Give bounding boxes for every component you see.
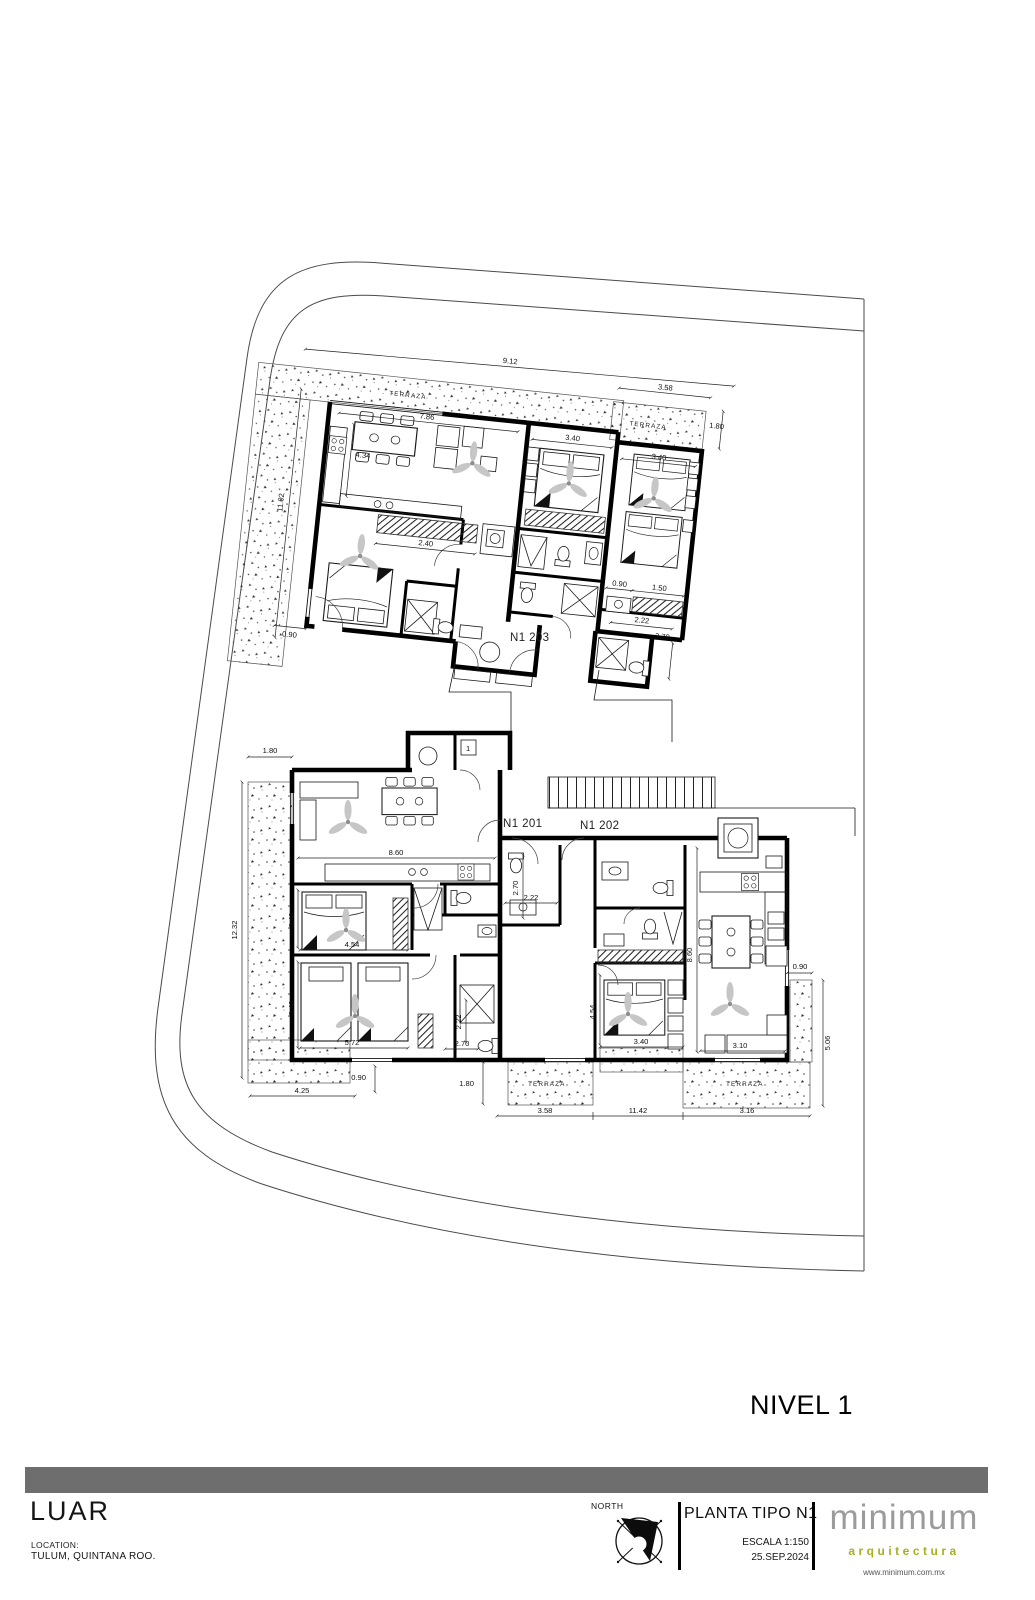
toilet-icon [509,853,524,873]
dim-label: 3.40 [634,1037,649,1046]
terrace-label: TERRAZA [726,1081,764,1088]
dim-label: 3.40 [287,1001,296,1016]
stove-icon [742,874,759,891]
closet-hatch [393,898,408,950]
floor-plan-svg: TERRAZA TERRAZA [0,0,1035,1600]
dim-label: 2.22 [634,615,650,625]
closet-tag: 1 [466,744,470,753]
building-upper: TERRAZA TERRAZA [227,331,734,711]
terrace-right [790,980,812,1062]
terrace-upper-top [255,362,623,432]
stove-icon [328,436,347,455]
drawing-sheet: TERRAZA TERRAZA [0,0,1035,1600]
dim-label: 1.80 [459,1079,474,1088]
project-name: LUAR [30,1496,110,1527]
staircase [548,777,715,808]
bed-icon [358,963,408,1041]
toilet-icon [451,891,471,906]
dim-label: 2.40 [418,538,434,548]
titleblock-bar [25,1467,988,1493]
toilet-icon [653,881,673,896]
dim-label: 1.50 [652,583,668,593]
dim-label: 3.10 [733,1041,748,1050]
dim-label: 4.54 [588,1005,597,1020]
dim-label: 7.86 [419,411,435,421]
bed-icon [604,980,665,1035]
dim-label: 9.12 [502,356,518,366]
sheet-title: PLANTA TIPO N1 [684,1505,811,1523]
dim-label: 2.70 [455,1039,470,1048]
stove-icon [458,864,474,880]
dim-label: 0.90 [793,962,808,971]
dim-label: 3.16 [740,1106,755,1115]
dim-label: 3.40 [565,433,581,443]
dim-label: 5.72 [345,1038,360,1047]
brand-logo: minimum [818,1498,990,1538]
bed-icon [323,563,393,627]
brand-tagline: arquitectura [818,1544,990,1558]
dining-table-icon [699,916,763,968]
toilet-icon [628,659,649,676]
terrace-upper-left [227,394,310,666]
toilet-icon [555,546,572,567]
dim-label: 11.02 [275,493,286,512]
dim-label: 8.60 [685,948,694,963]
dining-table-icon [382,778,437,826]
terrace-label: TERRAZA [528,1081,566,1088]
ceiling-fan-icon [709,982,751,1018]
bed-icon [621,512,682,569]
closet-hatch [418,1014,433,1048]
brand-website: www.minimum.com.mx [818,1568,990,1577]
dim-label: 5.06 [823,1036,832,1051]
location-value: TULUM, QUINTANA ROO. [31,1551,156,1562]
toilet-icon [519,582,536,603]
dim-label: 2.22 [524,893,539,902]
dim-label: 0.90 [612,579,628,589]
north-label: NORTH [591,1501,624,1511]
unit-label-n1-201: N1 201 [503,818,542,830]
level-title: NIVEL 1 [750,1390,853,1421]
dim-label: 1.80 [709,421,725,431]
titleblock-divider-right [812,1502,815,1570]
building-lower: TERRAZA TERRAZA 1 [248,733,812,1108]
dim-label: 3.58 [658,382,674,392]
dim-label: 4.54 [345,940,360,949]
dim-label: 3.40 [287,913,296,928]
dim-label: 8.60 [389,848,404,857]
ceiling-fan-icon [327,800,369,836]
dim-label: 12.32 [230,920,239,939]
sheet-date: 25.SEP.2024 [684,1552,809,1563]
dim-label: 0.90 [282,629,298,639]
closet-hatch [598,950,683,963]
unit-label-n1-202: N1 202 [580,820,619,832]
dim-label: 4.34 [355,450,371,460]
titleblock-divider-left [678,1502,681,1570]
toilet-icon [478,1039,498,1054]
dim-label: 1.80 [263,746,278,755]
dim-label: 2.70 [654,631,670,641]
north-compass-icon [616,1518,662,1564]
dim-label: 4.25 [295,1086,310,1095]
sheet-scale: ESCALA 1:150 [684,1537,809,1548]
dim-label: 11.42 [629,1106,647,1115]
terrace-left [248,782,292,1060]
unit-label-n1-203: N1 203 [510,632,549,644]
toilet-icon [643,919,658,939]
dim-label: 3.40 [651,452,667,462]
dim-label: 2.70 [511,881,520,896]
dim-label: 3.58 [538,1106,553,1115]
dim-label: 0.90 [351,1073,366,1082]
location-label: LOCATION: [31,1540,79,1550]
bed-icon [301,963,351,1041]
dim-label: 2.22 [454,1015,463,1030]
